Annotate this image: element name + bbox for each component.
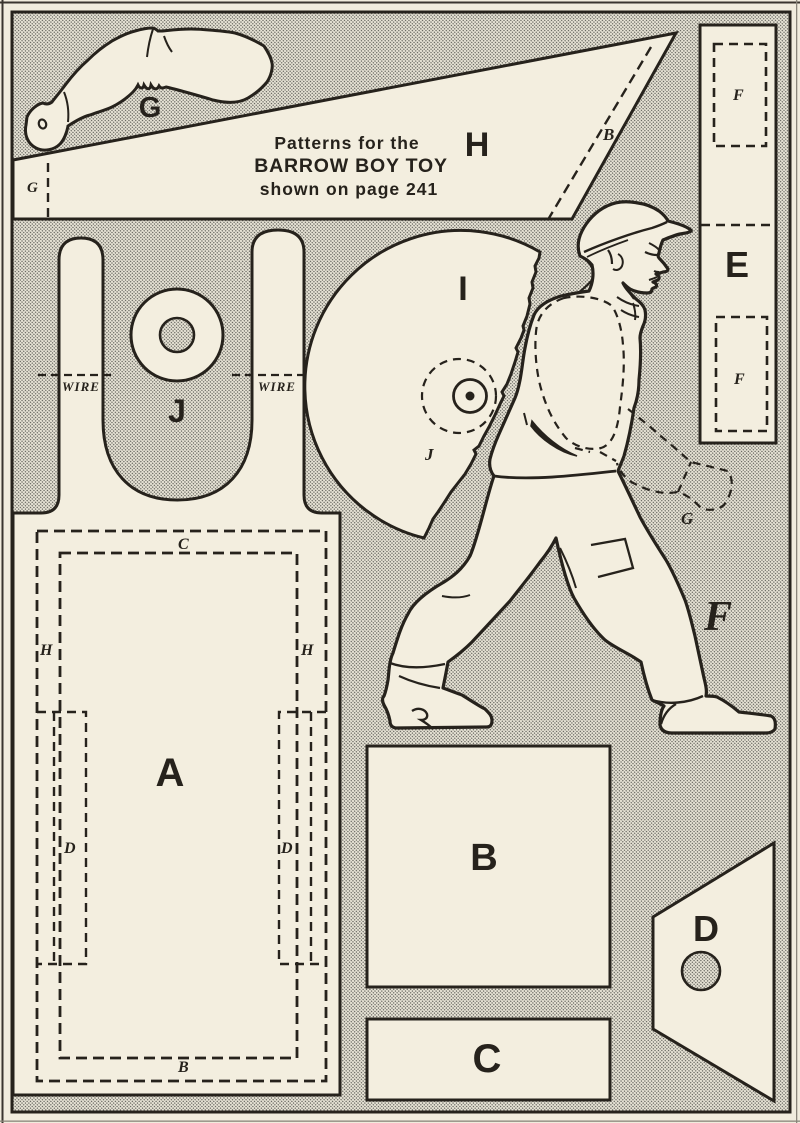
svg-text:D: D [280, 840, 293, 857]
svg-text:WIRE: WIRE [62, 379, 100, 394]
svg-text:BARROW BOY TOY: BARROW BOY TOY [254, 155, 448, 177]
svg-text:D: D [63, 840, 76, 857]
svg-text:shown on page 241: shown on page 241 [260, 179, 438, 199]
svg-text:J: J [168, 393, 186, 429]
svg-text:H: H [300, 642, 314, 659]
svg-text:I: I [458, 270, 467, 308]
svg-text:H: H [465, 126, 490, 164]
svg-text:F: F [732, 87, 744, 104]
svg-text:C: C [178, 536, 189, 553]
svg-text:J: J [424, 445, 434, 464]
svg-text:B: B [602, 125, 614, 144]
svg-text:C: C [473, 1037, 502, 1081]
svg-text:E: E [725, 244, 749, 285]
svg-text:G: G [681, 509, 694, 528]
svg-text:G: G [27, 180, 38, 196]
svg-text:B: B [177, 1059, 189, 1076]
svg-text:WIRE: WIRE [258, 379, 296, 394]
svg-text:D: D [693, 908, 719, 949]
svg-text:G: G [139, 92, 162, 124]
svg-text:A: A [156, 751, 185, 795]
svg-text:F: F [703, 594, 732, 640]
svg-text:B: B [470, 837, 497, 879]
svg-text:F: F [733, 371, 745, 388]
svg-text:Patterns for the: Patterns for the [274, 133, 419, 153]
svg-text:H: H [39, 642, 53, 659]
